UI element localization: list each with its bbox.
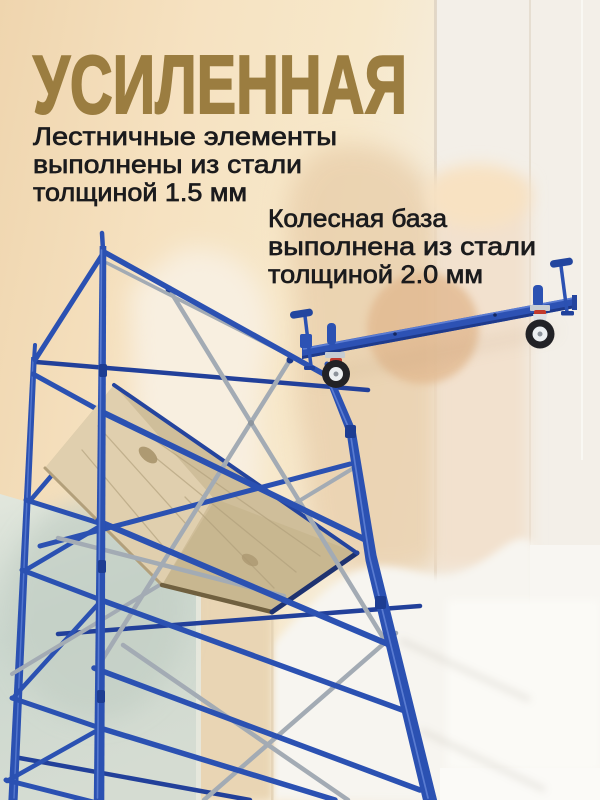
svg-text:выполнена из стали: выполнена из стали xyxy=(268,233,536,261)
svg-text:толщиной 2.0 мм: толщиной 2.0 мм xyxy=(268,261,483,289)
svg-text:Колесная база: Колесная база xyxy=(268,205,447,233)
svg-text:выполнены из стали: выполнены из стали xyxy=(33,151,302,179)
svg-text:Лестничные элементы: Лестничные элементы xyxy=(33,123,337,151)
svg-text:УСИЛЕННАЯ: УСИЛЕННАЯ xyxy=(33,38,407,131)
svg-text:толщиной 1.5 мм: толщиной 1.5 мм xyxy=(33,179,247,207)
